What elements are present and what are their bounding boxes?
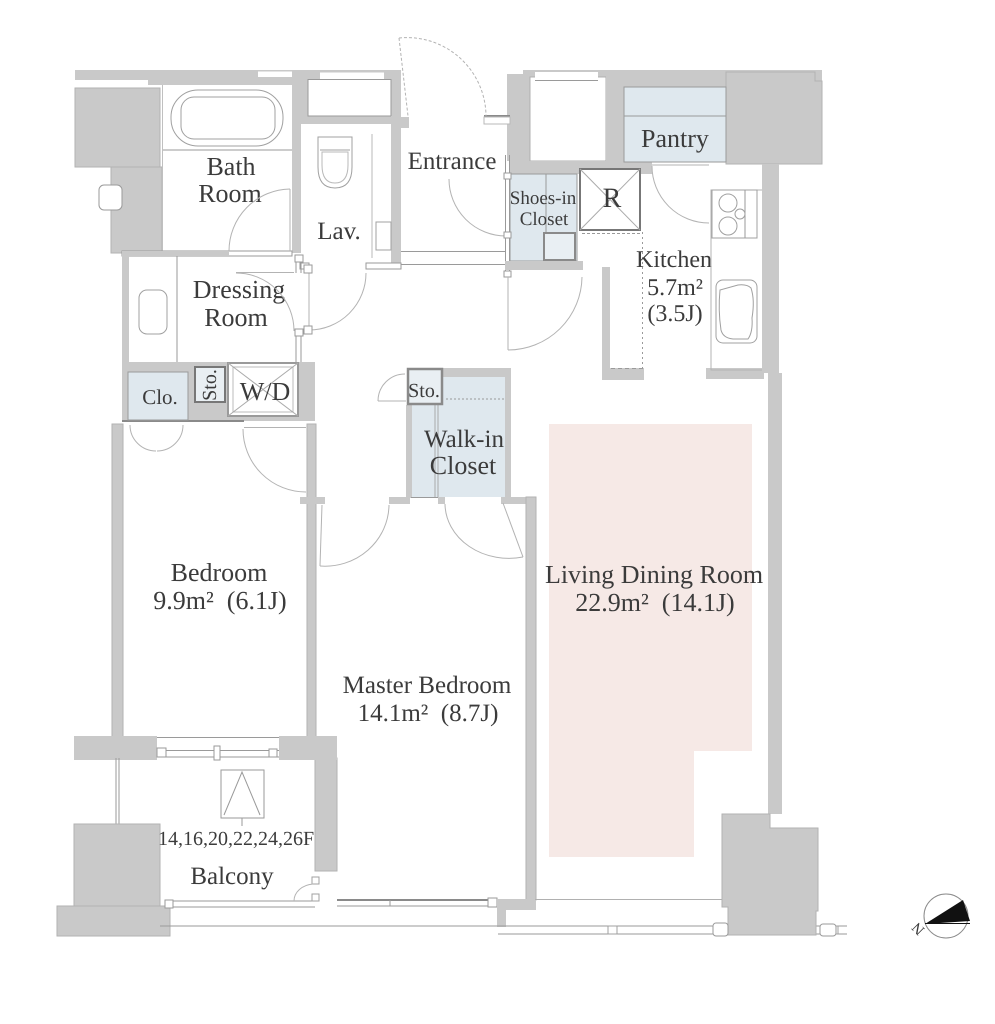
svg-text:Bath: Bath [206,152,255,181]
svg-text:Entrance: Entrance [408,148,497,175]
svg-text:Bedroom: Bedroom [171,558,268,587]
svg-text:Living Dining Room: Living Dining Room [545,560,763,589]
svg-text:Shoes-in: Shoes-in [510,188,577,209]
svg-text:Sto.: Sto. [199,369,221,401]
svg-text:Walk-in: Walk-in [424,426,504,453]
svg-text:(3.5J): (3.5J) [647,301,702,327]
svg-text:5.7m²: 5.7m² [647,275,703,301]
svg-text:Sto.: Sto. [408,380,440,402]
svg-text:Pantry: Pantry [641,124,709,153]
svg-text:14,16,20,22,24,26F: 14,16,20,22,24,26F [158,828,314,850]
svg-text:9.9m² (6.1J): 9.9m² (6.1J) [153,586,286,615]
svg-text:22.9m² (14.1J): 22.9m² (14.1J) [575,588,734,617]
svg-text:Master Bedroom: Master Bedroom [343,672,512,699]
svg-text:Balcony: Balcony [190,863,274,890]
svg-text:Closet: Closet [520,209,569,230]
svg-text:14.1m² (8.7J): 14.1m² (8.7J) [358,700,499,727]
svg-text:R: R [603,183,622,214]
svg-text:Dressing: Dressing [193,275,285,304]
svg-text:W/D: W/D [240,377,291,406]
svg-text:Room: Room [204,303,268,332]
svg-text:Closet: Closet [430,451,497,480]
svg-text:Clo.: Clo. [142,385,178,409]
svg-text:Lav.: Lav. [317,218,361,245]
svg-text:Kitchen: Kitchen [636,247,712,273]
svg-text:Room: Room [198,179,262,208]
